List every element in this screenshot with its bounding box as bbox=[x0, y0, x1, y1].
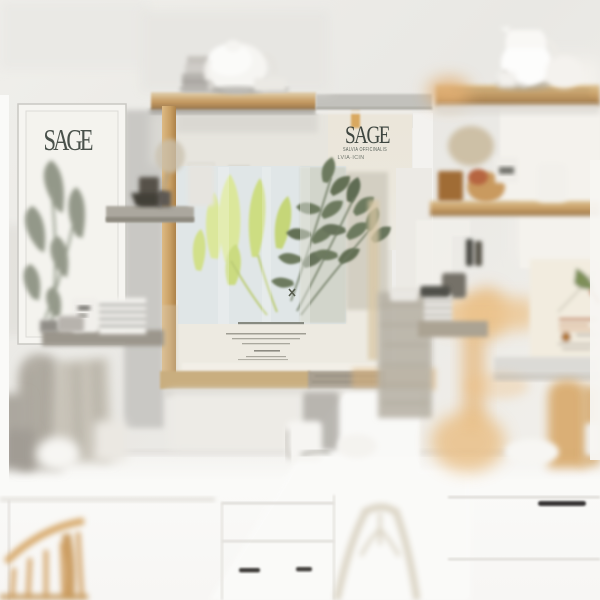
svg-text:SAGE: SAGE bbox=[44, 122, 93, 157]
svg-text:LVIA·ICIN: LVIA·ICIN bbox=[338, 155, 365, 161]
svg-text:SAGE: SAGE bbox=[345, 122, 390, 149]
svg-text:SALVIA OFFICINALIS: SALVIA OFFICINALIS bbox=[343, 147, 387, 153]
